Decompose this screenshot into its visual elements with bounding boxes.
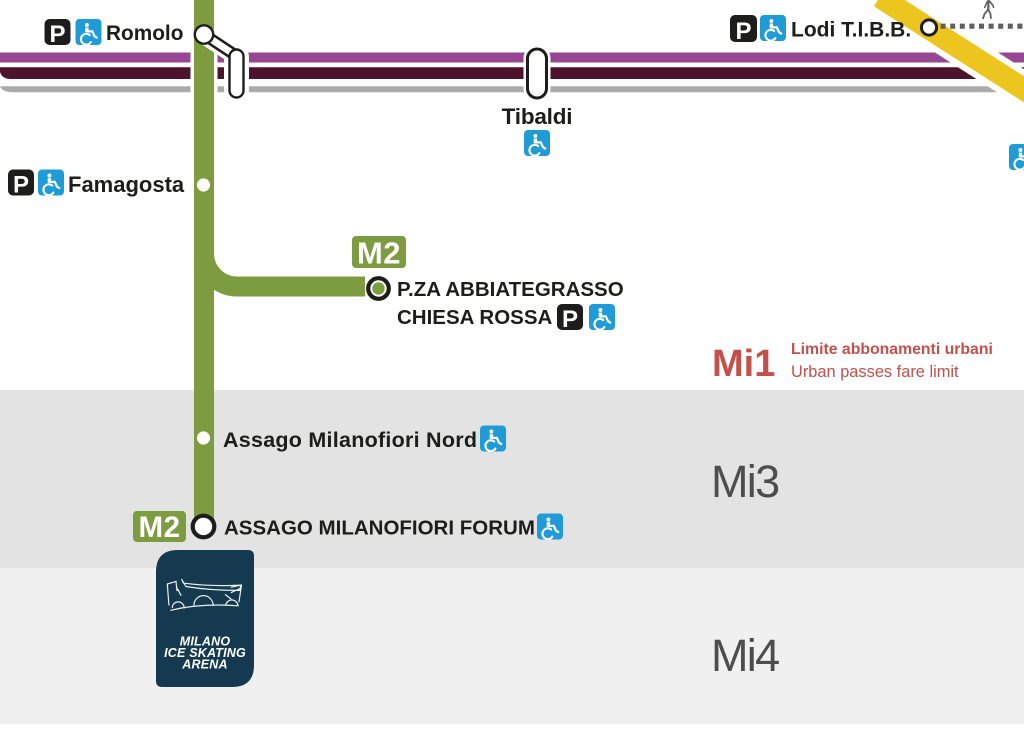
svg-text:P.ZA ABBIATEGRASSO: P.ZA ABBIATEGRASSO bbox=[397, 278, 624, 301]
svg-text:M2: M2 bbox=[357, 236, 401, 271]
svg-text:Mi4: Mi4 bbox=[711, 630, 779, 681]
svg-text:Lodi T.I.B.B.: Lodi T.I.B.B. bbox=[791, 19, 911, 42]
svg-text:Romolo: Romolo bbox=[106, 22, 183, 45]
svg-text:CHIESA ROSSA: CHIESA ROSSA bbox=[397, 306, 552, 329]
svg-text:Mi1: Mi1 bbox=[712, 343, 775, 385]
svg-text:P: P bbox=[735, 18, 751, 45]
svg-text:Mi3: Mi3 bbox=[711, 456, 779, 507]
svg-text:Famagosta: Famagosta bbox=[68, 172, 185, 197]
svg-text:Urban passes fare limit: Urban passes fare limit bbox=[791, 363, 959, 381]
svg-text:Assago Milanofiori Nord: Assago Milanofiori Nord bbox=[223, 428, 477, 452]
svg-text:Tibaldi: Tibaldi bbox=[502, 104, 573, 129]
svg-text:ASSAGO MILANOFIORI FORUM: ASSAGO MILANOFIORI FORUM bbox=[224, 517, 535, 540]
svg-text:Limite abbonamenti urbani: Limite abbonamenti urbani bbox=[791, 341, 993, 358]
svg-text:M2: M2 bbox=[139, 511, 181, 544]
svg-text:ARENA: ARENA bbox=[181, 658, 227, 672]
svg-text:P: P bbox=[49, 21, 65, 48]
svg-text:P: P bbox=[13, 172, 29, 199]
svg-text:P: P bbox=[562, 306, 578, 333]
